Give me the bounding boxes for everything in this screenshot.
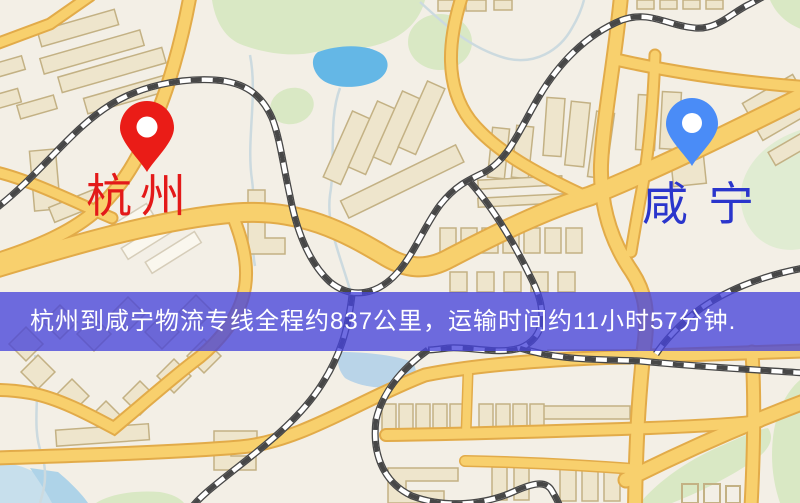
route-info-text: 杭州到咸宁物流专线全程约837公里，运输时间约11小时57分钟. [30, 308, 736, 335]
destination-city-label: 咸宁 [642, 182, 774, 228]
destination-pin-hole [682, 113, 702, 133]
origin-pin-hole [137, 117, 158, 138]
route-info-banner: 杭州到咸宁物流专线全程约837公里，运输时间约11小时57分钟. [0, 292, 800, 351]
origin-city-label: 杭州 [86, 174, 194, 220]
origin-pin-icon [117, 100, 177, 176]
destination-pin-icon [664, 97, 720, 169]
map-screenshot: 杭州 咸宁 杭州到咸宁物流专线全程约837公里，运输时间约11小时57分钟. [0, 0, 800, 503]
map-image [0, 0, 800, 503]
